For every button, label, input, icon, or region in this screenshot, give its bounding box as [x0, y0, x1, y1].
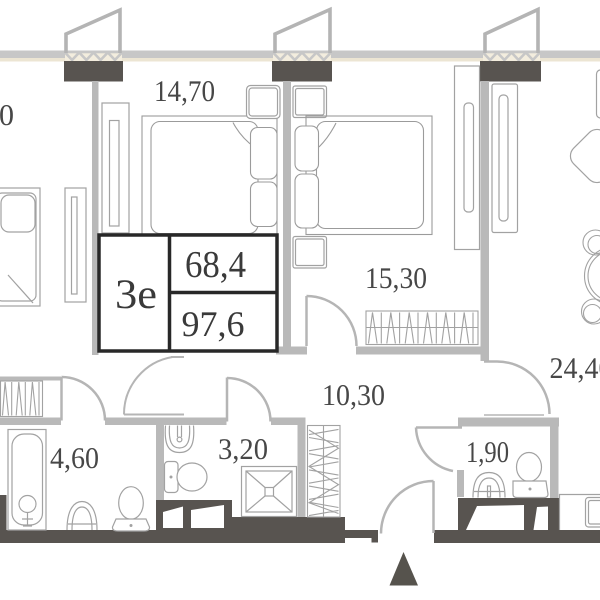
svg-text:10,30: 10,30	[322, 379, 385, 412]
svg-text:1,90: 1,90	[466, 436, 509, 469]
svg-text:4,60: 4,60	[50, 442, 99, 475]
svg-text:3,20: 3,20	[218, 433, 268, 466]
svg-text:0: 0	[0, 99, 14, 132]
svg-text:3е: 3е	[115, 272, 157, 318]
svg-text:15,30: 15,30	[365, 262, 427, 295]
svg-text:14,70: 14,70	[154, 75, 215, 108]
svg-text:24,40: 24,40	[550, 352, 600, 385]
svg-text:68,4: 68,4	[185, 244, 246, 286]
svg-text:97,6: 97,6	[182, 304, 245, 344]
